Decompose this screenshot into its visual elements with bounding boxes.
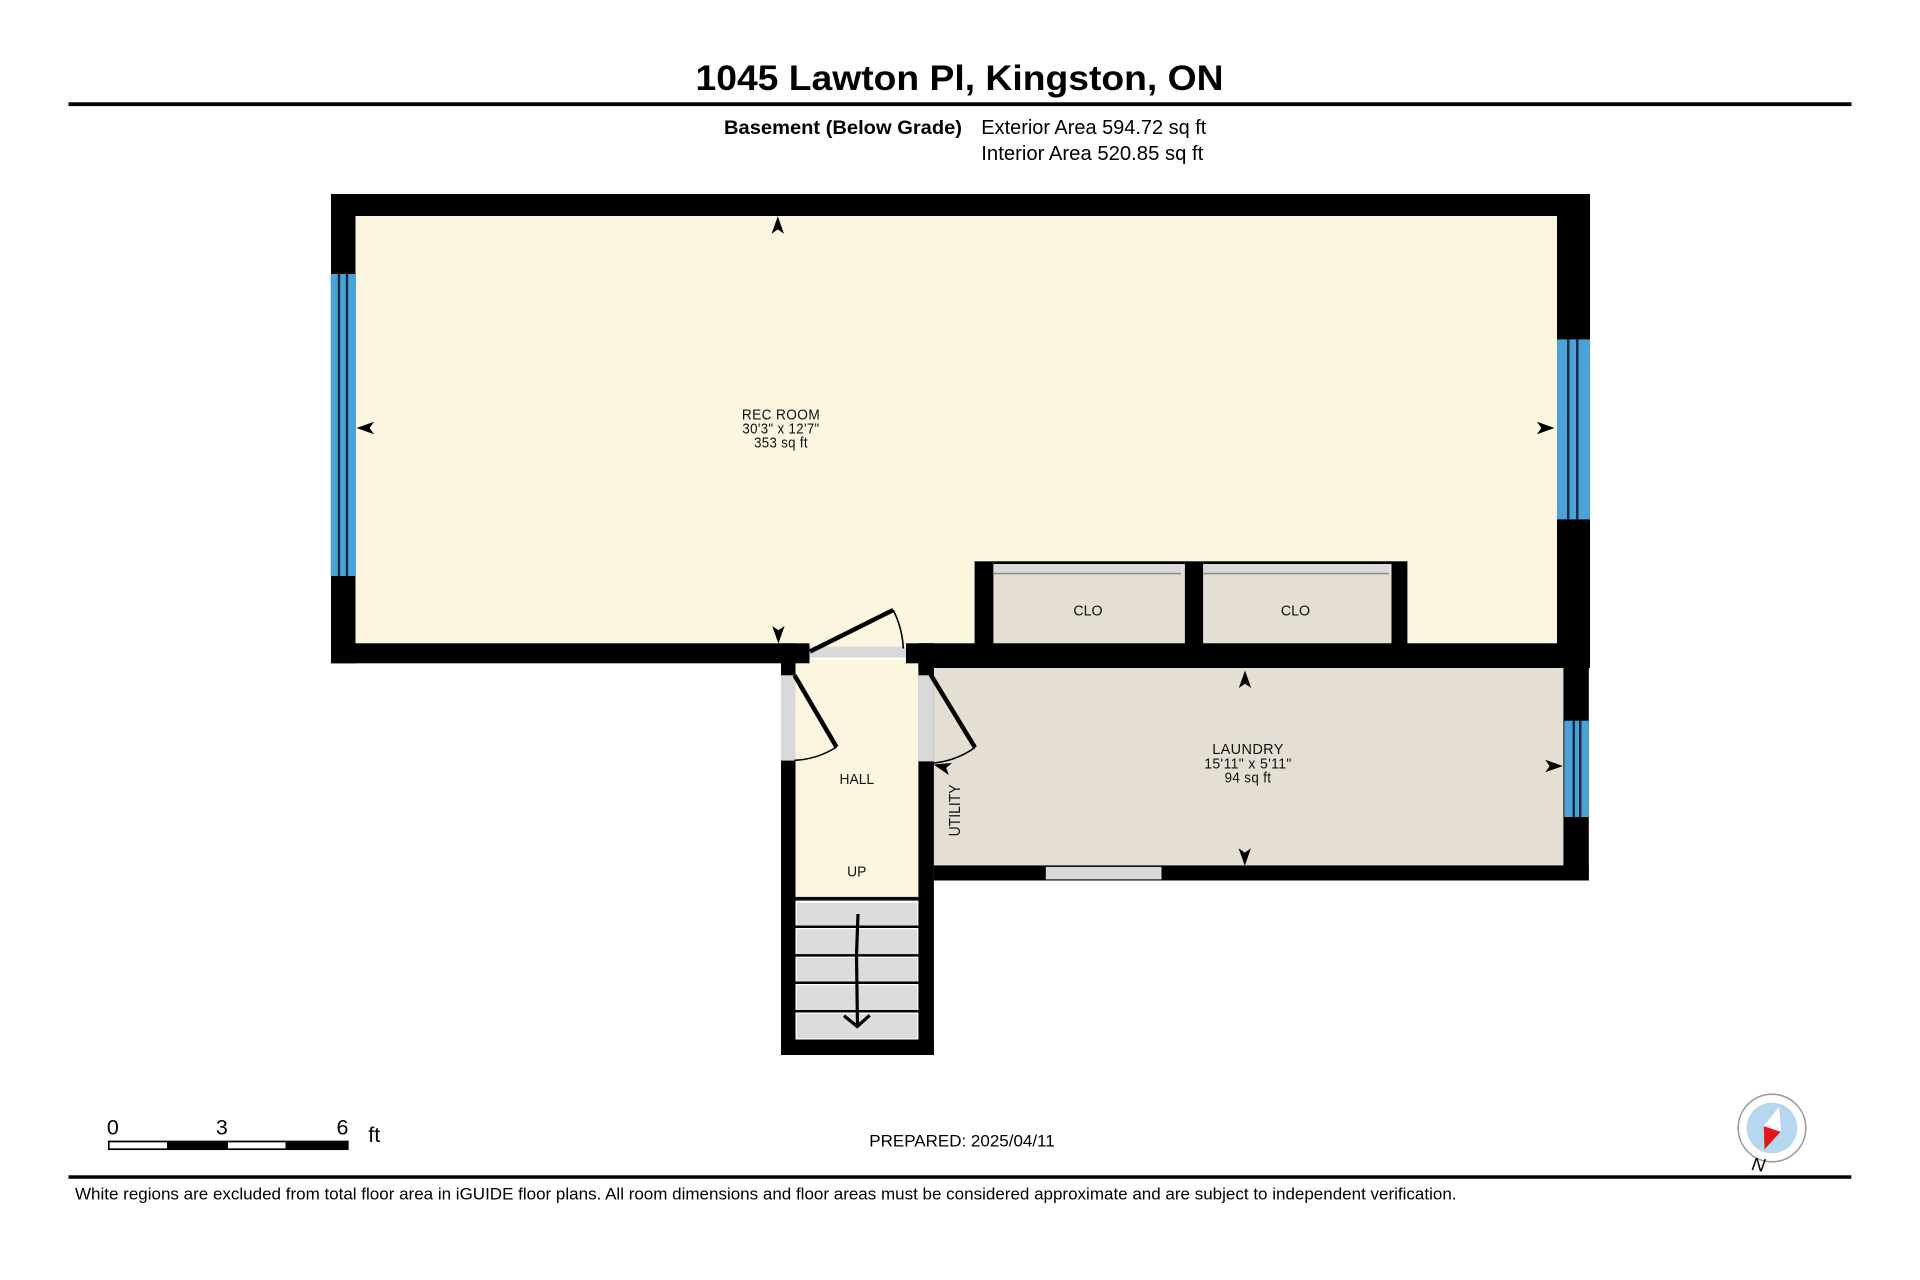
svg-text:1045 Lawton Pl, Kingston, ON: 1045 Lawton Pl, Kingston, ON	[696, 59, 1224, 98]
svg-text:94 sq ft: 94 sq ft	[1225, 770, 1272, 787]
svg-text:UTILITY: UTILITY	[947, 784, 964, 836]
svg-text:CLO: CLO	[1281, 603, 1310, 620]
svg-text:CLO: CLO	[1073, 603, 1102, 620]
svg-text:ft: ft	[368, 1123, 380, 1147]
svg-text:HALL: HALL	[840, 771, 875, 788]
svg-text:353 sq ft: 353 sq ft	[754, 434, 808, 451]
svg-text:UP: UP	[847, 864, 866, 881]
svg-text:Interior Area 520.85 sq ft: Interior Area 520.85 sq ft	[981, 143, 1203, 165]
svg-text:0: 0	[107, 1116, 119, 1140]
svg-text:Basement (Below Grade): Basement (Below Grade)	[724, 117, 962, 139]
svg-text:Exterior Area 594.72 sq ft: Exterior Area 594.72 sq ft	[981, 117, 1206, 139]
svg-text:White regions are excluded fro: White regions are excluded from total fl…	[75, 1185, 1457, 1204]
svg-text:PREPARED: 2025/04/11: PREPARED: 2025/04/11	[869, 1132, 1054, 1151]
svg-text:6: 6	[337, 1116, 349, 1140]
svg-text:3: 3	[216, 1116, 228, 1140]
